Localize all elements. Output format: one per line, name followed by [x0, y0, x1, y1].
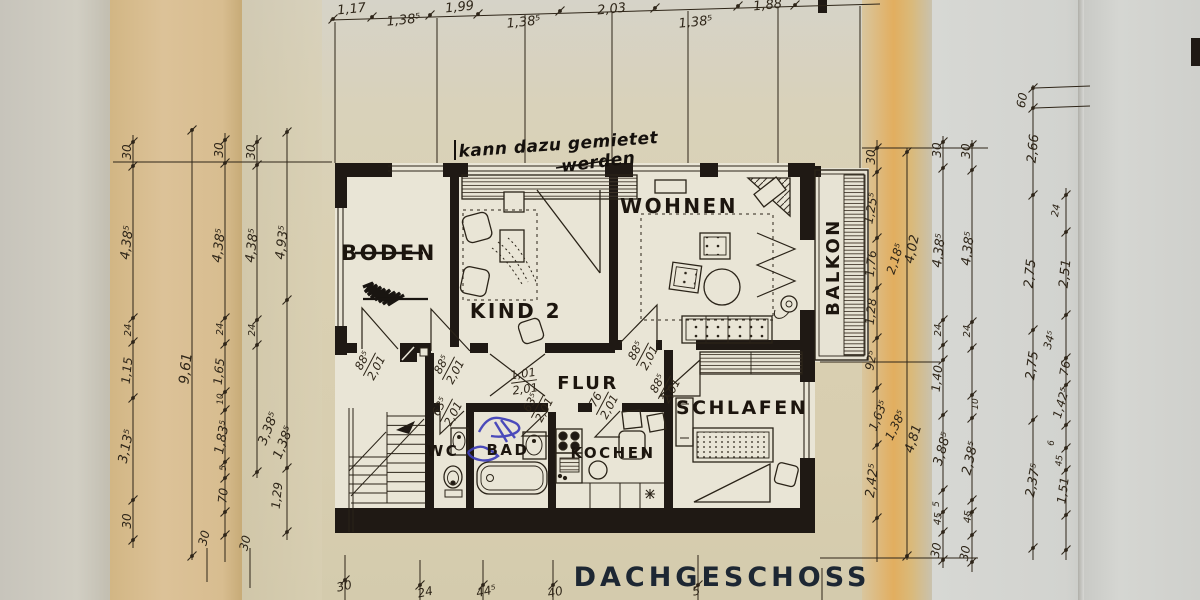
dimension-label: 4,93⁵	[273, 225, 292, 261]
dimension-label: 30	[959, 143, 973, 159]
dimension-label: 45	[932, 512, 944, 526]
duct	[420, 348, 428, 356]
room-label-kind2: KIND 2	[470, 299, 562, 323]
dimension-label: 5	[219, 465, 229, 471]
floor-plan-drawing: 1,171,38⁵1,991,38⁵2,031,38⁵1,88304,38⁵24…	[0, 0, 1200, 600]
dimension-label: 2,38⁵	[959, 440, 981, 477]
dimension-label: 24	[1050, 203, 1063, 217]
dimension-label: 60	[1014, 91, 1031, 109]
dimension-label: 1,42⁵	[1050, 386, 1072, 420]
dimension-label: 40	[546, 584, 564, 600]
door-size-label: 1,012,01	[509, 365, 539, 398]
scan-mark-top	[818, 0, 827, 13]
dimension-label: 30	[244, 144, 258, 160]
dimension-label: 44⁵	[475, 582, 498, 600]
dimension-label: 70	[215, 487, 231, 504]
room-label-bad: BAD	[487, 441, 530, 459]
dimension-label: 2,42⁵	[863, 463, 882, 499]
dimension-label: 24	[123, 324, 134, 337]
dimension-label: 30	[120, 513, 134, 529]
room-label-boden: BODEN	[341, 241, 437, 265]
dimension-label: 1,51	[1054, 476, 1072, 504]
dimension-label: 3,88⁵	[931, 431, 955, 468]
dimension-label: 30	[930, 142, 944, 158]
dimension-label: 1,38⁵	[506, 13, 542, 31]
room-label-schlafen: SCHLAFEN	[676, 397, 808, 419]
dimension-label: 30	[928, 541, 945, 559]
dimension-label: 5	[932, 501, 942, 507]
dimension-label: 1,65	[211, 358, 228, 386]
dimension-label: 24	[247, 324, 258, 337]
dimension-label: 1,40	[929, 364, 946, 392]
dimension-label: 3,13⁵	[116, 428, 138, 465]
dimension-label: 76	[1057, 359, 1074, 377]
dimension-label: 1,99	[444, 0, 474, 16]
dimension-label: 30	[195, 529, 212, 548]
dimension-label: 34⁵	[1041, 329, 1059, 350]
dimension-label: 4,81	[902, 423, 925, 455]
dimension-label: 1,17	[336, 0, 367, 18]
floor-title: DACHGESCHOSS	[574, 562, 871, 593]
dimension-label: 2,75	[1023, 350, 1042, 381]
dimension-label: 10	[971, 398, 981, 410]
dimension-label: 30	[864, 149, 878, 165]
room-label-kochen: KOCHEN	[570, 444, 655, 462]
dimension-label: 30	[957, 544, 974, 562]
room-label-wohnen: WOHNEN	[620, 194, 738, 218]
dimension-label: 4,38⁵	[243, 228, 262, 264]
scan-mark-right	[1191, 38, 1200, 66]
dimension-label: 1,38⁵	[678, 13, 714, 31]
balcony-decking	[844, 175, 865, 355]
dimension-label: 2,03	[596, 1, 626, 19]
dimension-label: 4,38⁵	[118, 225, 137, 261]
dimension-label: 24	[416, 584, 434, 600]
dimension-label: 30	[335, 578, 353, 595]
dimension-label: 1,83⁵	[212, 419, 233, 455]
dimension-label: 2,51	[1057, 258, 1075, 288]
dimension-label: 24	[962, 325, 973, 338]
dimension-label: 2,75	[1022, 258, 1040, 288]
dimension-label: 30	[236, 534, 253, 553]
room-label-flur: FLUR	[557, 373, 619, 394]
dimension-label: 1,38⁵	[386, 11, 422, 29]
dimension-label: 30	[212, 142, 226, 158]
dimension-label: 1,76	[863, 249, 880, 277]
dimension-label: 1,29	[269, 482, 286, 510]
dimension-label: 2,37⁵	[1023, 462, 1044, 498]
dimension-label: 6	[1047, 440, 1057, 446]
dimension-label: 24	[215, 323, 226, 336]
kind2-closet	[462, 175, 637, 199]
room-label-wc: WC	[427, 442, 460, 460]
dimension-label: 4,38⁵	[930, 233, 949, 269]
dimension-label: 4,02	[902, 234, 923, 265]
dimension-label: 4,38⁵	[210, 228, 229, 264]
dimension-label: 10	[216, 393, 226, 405]
dimension-label: 45	[1054, 454, 1065, 467]
light-symbol	[645, 489, 655, 499]
dimension-label: 1,28	[863, 297, 880, 325]
room-label-balkon: BALKON	[823, 218, 844, 316]
dimension-label: 45	[962, 510, 974, 524]
dimension-label: 9,61	[176, 352, 195, 385]
dimension-label: 4,38⁵	[959, 231, 978, 267]
dimension-label: 24	[933, 324, 944, 337]
dimension-label: 1,15	[119, 357, 136, 385]
dimension-label: 30	[120, 144, 134, 160]
dimension-label: 2,66	[1025, 133, 1043, 163]
